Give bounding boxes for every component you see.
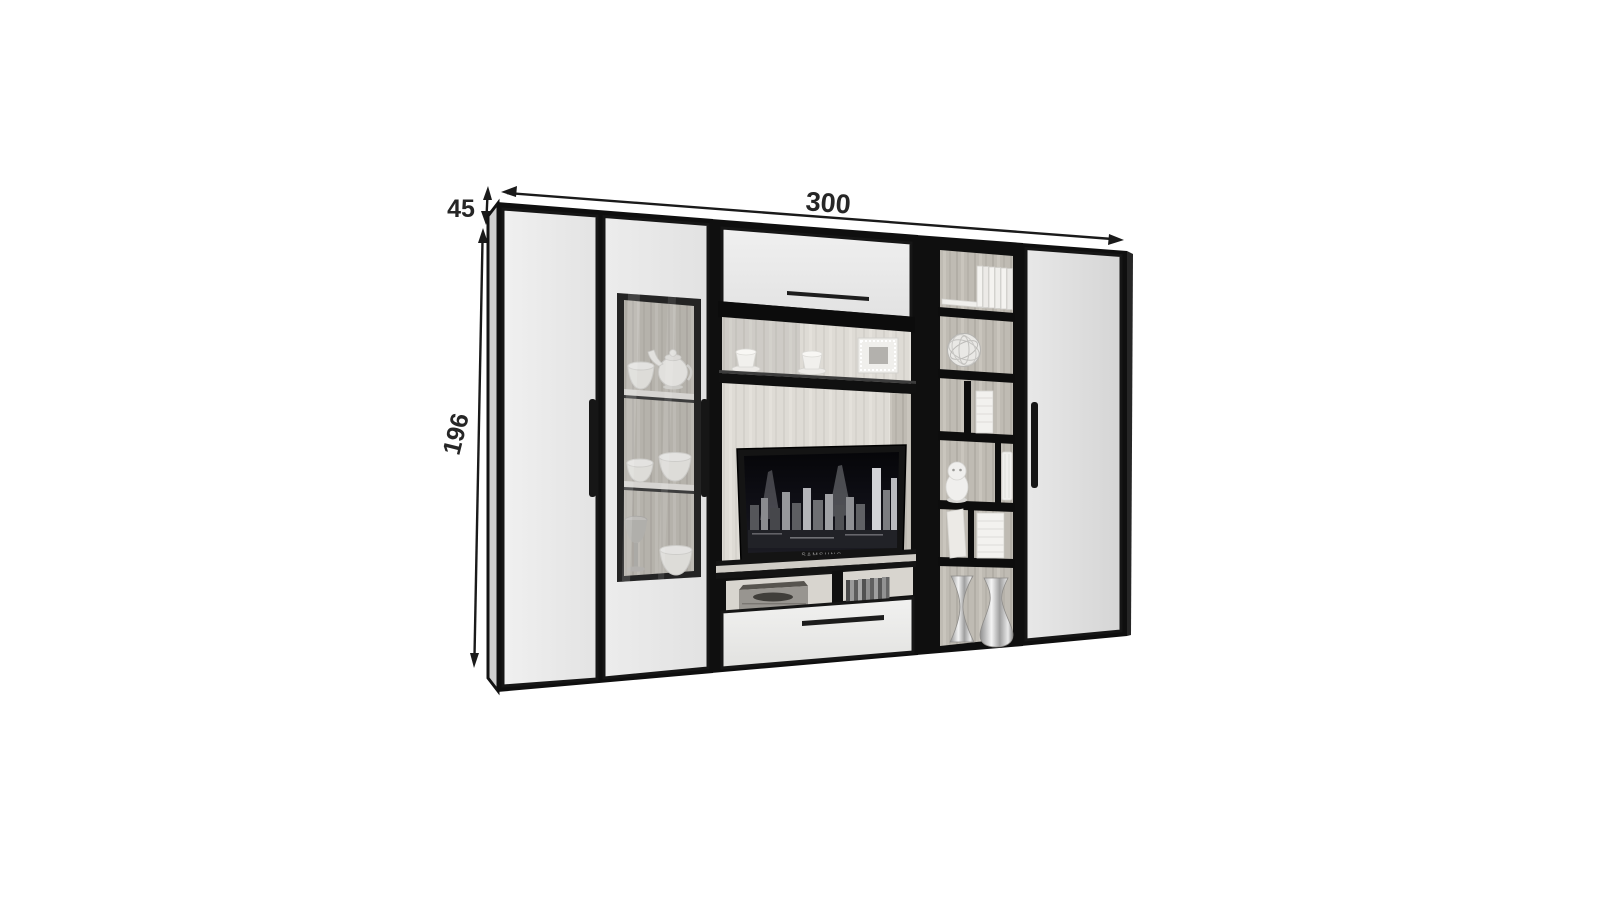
book-stack-vertical (976, 391, 993, 433)
decorative-frame (858, 338, 898, 373)
left-wardrobe-door (503, 209, 597, 686)
depth-dimension-label: 45 (447, 195, 475, 223)
bookshelf-divider-2 (995, 442, 1001, 506)
bookshelf-divider-3 (968, 510, 974, 562)
dvd-row (846, 577, 890, 602)
left-side-panel (488, 203, 498, 691)
bookshelf-divider-1 (964, 381, 971, 441)
display-door-handle (701, 399, 708, 497)
right-wardrobe-door (1026, 249, 1121, 641)
wall-unit: SAMSUNG (488, 202, 1133, 692)
compartment-divider (832, 570, 843, 605)
owl-figurine (946, 462, 968, 503)
left-door-handle (589, 399, 596, 497)
diagram-canvas: 300 45 196 (0, 0, 1600, 900)
width-dimension-label: 300 (805, 186, 852, 219)
right-door-handle (1031, 402, 1038, 488)
furniture-dimension-diagram: 300 45 196 (0, 0, 1600, 900)
leaning-sheet (947, 509, 966, 558)
book-stack-lying (977, 513, 1004, 558)
small-vase (1002, 452, 1012, 500)
